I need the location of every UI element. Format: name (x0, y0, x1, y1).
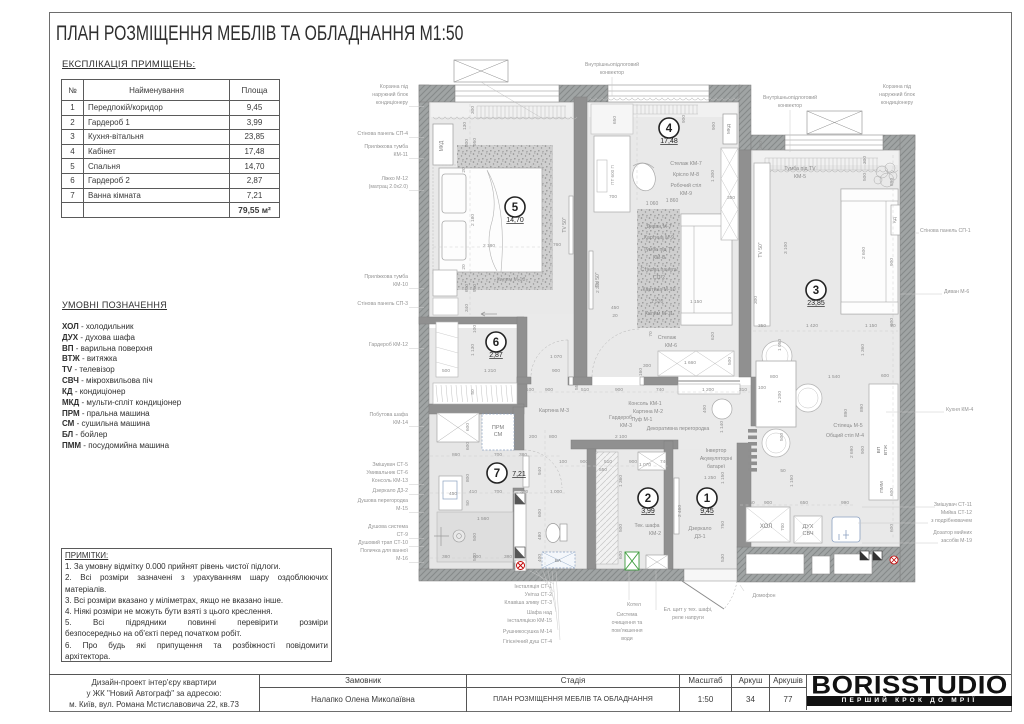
svg-text:380: 380 (504, 554, 512, 560)
svg-text:14,70: 14,70 (506, 217, 524, 224)
svg-text:1: 1 (704, 493, 711, 505)
svg-text:КМ-8: КМ-8 (653, 255, 665, 261)
svg-text:TV 50": TV 50" (758, 242, 764, 257)
svg-text:М-16: М-16 (396, 556, 408, 562)
svg-text:СМ: СМ (494, 432, 503, 438)
svg-text:КМ-2: КМ-2 (649, 531, 661, 537)
svg-text:100: 100 (559, 459, 567, 465)
svg-text:Інсталяція СТ-1: Інсталяція СТ-1 (514, 584, 552, 590)
svg-text:900: 900 (629, 459, 637, 465)
svg-text:Д3-1: Д3-1 (694, 534, 705, 540)
svg-text:650: 650 (612, 116, 618, 124)
svg-text:350: 350 (758, 323, 766, 329)
svg-text:ПТ 600 П: ПТ 600 П (610, 165, 615, 185)
svg-text:ХОЛ: ХОЛ (760, 524, 772, 530)
svg-text:2 240: 2 240 (595, 281, 601, 293)
svg-text:Душова система: Душова система (368, 524, 408, 530)
svg-text:70: 70 (648, 331, 654, 337)
svg-text:1 560: 1 560 (477, 516, 489, 522)
svg-text:380: 380 (520, 489, 528, 495)
svg-text:940: 940 (537, 467, 543, 475)
svg-text:750: 750 (720, 521, 726, 529)
svg-text:Картина М-2: Картина М-2 (633, 409, 663, 415)
svg-text:Тумба під TV: Тумба під TV (784, 166, 816, 172)
svg-text:600: 600 (464, 284, 470, 292)
svg-text:380: 380 (519, 452, 527, 458)
svg-text:Рушникосушка М-14: Рушникосушка М-14 (503, 629, 552, 635)
svg-text:КМ-3: КМ-3 (620, 423, 632, 429)
svg-text:20: 20 (612, 313, 618, 319)
svg-text:Стінова панель СП-4: Стінова панель СП-4 (357, 131, 408, 137)
svg-text:400: 400 (702, 405, 708, 413)
svg-text:500: 500 (779, 433, 785, 441)
svg-text:800: 800 (549, 434, 557, 440)
svg-text:500: 500 (472, 533, 478, 541)
svg-text:1 360: 1 360 (618, 475, 624, 487)
svg-text:інсталяцією КМ-15: інсталяцією КМ-15 (507, 618, 552, 624)
svg-text:Общий стіл М-4: Общий стіл М-4 (826, 432, 864, 439)
svg-text:води: води (621, 636, 632, 642)
svg-text:550: 550 (574, 382, 580, 390)
svg-text:Корзина під: Корзина під (380, 84, 408, 90)
svg-text:380: 380 (442, 554, 450, 560)
svg-text:3,99: 3,99 (641, 508, 655, 515)
svg-text:Змішувач СТ-11: Змішувач СТ-11 (934, 502, 972, 508)
svg-text:(матрац 2.0х2.0): (матрац 2.0х2.0) (369, 184, 409, 190)
svg-text:КМ-10: КМ-10 (393, 282, 408, 288)
svg-text:1 300: 1 300 (710, 170, 716, 182)
svg-text:Пуф М-1: Пуф М-1 (632, 417, 653, 423)
svg-text:600: 600 (618, 551, 624, 559)
svg-text:900: 900 (552, 368, 560, 374)
svg-text:Диван М-6: Диван М-6 (944, 289, 969, 295)
svg-text:Стінова панель СП-1: Стінова панель СП-1 (920, 228, 971, 234)
svg-text:Гардероб КМ-12: Гардероб КМ-12 (369, 342, 408, 348)
svg-text:1 150: 1 150 (789, 475, 795, 487)
svg-text:7: 7 (494, 468, 500, 480)
svg-text:Стінова панель СП-3: Стінова панель СП-3 (357, 301, 408, 307)
svg-text:СВЧ: СВЧ (802, 531, 813, 537)
svg-text:50: 50 (780, 468, 786, 474)
svg-text:Картина М-9: Картина М-9 (644, 235, 674, 241)
svg-text:1 860: 1 860 (666, 198, 679, 204)
svg-text:КМ-11: КМ-11 (394, 152, 409, 158)
svg-text:2 690: 2 690 (849, 446, 855, 458)
svg-text:Консоль КМ-13: Консоль КМ-13 (372, 478, 408, 484)
svg-text:конвектор: конвектор (600, 70, 624, 76)
svg-text:Дзеркало Д3-2: Дзеркало Д3-2 (373, 488, 409, 494)
svg-text:наружний блок: наружний блок (372, 91, 409, 98)
svg-text:800: 800 (770, 374, 778, 380)
svg-text:700: 700 (494, 452, 502, 458)
svg-text:кондиціонеру: кондиціонеру (376, 100, 409, 106)
svg-text:Ліжко М-12: Ліжко М-12 (382, 176, 409, 182)
svg-text:50: 50 (465, 500, 471, 506)
svg-text:засобів М-19: засобів М-19 (941, 538, 972, 544)
svg-text:1 140: 1 140 (719, 421, 725, 433)
svg-text:Диван М-7: Диван М-7 (646, 224, 671, 230)
svg-text:1 250: 1 250 (704, 475, 716, 481)
svg-text:БА: БА (555, 558, 562, 563)
svg-text:ПРМ: ПРМ (492, 425, 505, 431)
svg-text:800: 800 (473, 554, 481, 560)
svg-text:Картина М-3: Картина М-3 (539, 408, 569, 414)
svg-text:900: 900 (580, 459, 588, 465)
svg-text:Душовий трап СТ-10: Душовий трап СТ-10 (358, 539, 408, 546)
svg-text:Внутрішньопідлоговий: Внутрішньопідлоговий (585, 61, 639, 68)
svg-text:600: 600 (537, 509, 543, 517)
svg-text:200: 200 (529, 434, 537, 440)
svg-text:300: 300 (470, 106, 476, 114)
svg-text:900: 900 (681, 115, 687, 123)
svg-text:890: 890 (843, 409, 849, 417)
svg-text:450: 450 (611, 305, 619, 311)
svg-text:4: 4 (666, 123, 673, 135)
svg-text:1 070: 1 070 (550, 354, 562, 360)
svg-text:Внутрішньопідлоговий: Внутрішньопідлоговий (763, 94, 817, 101)
svg-text:620: 620 (710, 332, 716, 340)
svg-text:Дозатор мийних: Дозатор мийних (933, 529, 972, 536)
svg-text:300: 300 (643, 363, 651, 369)
svg-text:350: 350 (727, 195, 735, 201)
svg-text:Мийка СТ-12: Мийка СТ-12 (941, 509, 972, 516)
svg-text:500: 500 (727, 357, 733, 365)
svg-text:700: 700 (494, 489, 502, 495)
svg-text:960: 960 (472, 284, 478, 292)
svg-text:800: 800 (465, 474, 471, 482)
svg-text:Консоль КМ-1: Консоль КМ-1 (628, 401, 661, 407)
svg-text:2,87: 2,87 (489, 352, 503, 359)
svg-text:160: 160 (638, 368, 644, 376)
svg-text:М-15: М-15 (396, 506, 408, 512)
svg-text:Стелаж КМ-7: Стелаж КМ-7 (670, 161, 702, 167)
svg-text:1 210: 1 210 (484, 368, 496, 374)
svg-text:МКД: МКД (726, 123, 732, 134)
svg-text:ПММ: ПММ (879, 481, 885, 492)
svg-text:1 070: 1 070 (639, 462, 651, 468)
svg-text:1 520: 1 520 (651, 299, 664, 305)
svg-text:КМ-6: КМ-6 (665, 343, 677, 349)
svg-text:100: 100 (472, 325, 478, 333)
svg-text:20: 20 (461, 264, 467, 270)
svg-text:600: 600 (465, 423, 471, 431)
svg-text:Домофон: Домофон (753, 593, 776, 599)
svg-text:Тумба під TV: Тумба під TV (643, 247, 675, 253)
svg-text:Стінова панель: Стінова панель (640, 267, 677, 273)
svg-text:2 600: 2 600 (861, 247, 867, 259)
svg-text:реле напруги: реле напруги (672, 615, 704, 621)
svg-text:1 150: 1 150 (865, 323, 877, 329)
svg-text:9,45: 9,45 (700, 508, 714, 515)
svg-text:Стелаж: Стелаж (658, 335, 677, 341)
svg-text:600: 600 (881, 373, 889, 379)
svg-text:Килим М-13: Килим М-13 (497, 277, 526, 283)
svg-text:100: 100 (758, 385, 766, 391)
svg-text:Інвертор: Інвертор (706, 448, 727, 454)
svg-text:Робочий стіл: Робочий стіл (671, 182, 702, 189)
svg-text:340: 340 (464, 304, 470, 312)
svg-text:КМ-14: КМ-14 (393, 420, 408, 426)
svg-text:400: 400 (537, 554, 543, 562)
svg-text:23,85: 23,85 (807, 300, 825, 307)
svg-text:530: 530 (720, 554, 726, 562)
svg-text:410: 410 (469, 489, 477, 495)
svg-text:з подрібнювачем: з подрібнювачем (931, 518, 972, 524)
svg-text:1 150: 1 150 (690, 299, 702, 305)
svg-text:2 180: 2 180 (470, 214, 476, 226)
svg-text:3: 3 (813, 285, 819, 297)
svg-text:600: 600 (889, 524, 895, 532)
svg-text:800: 800 (464, 139, 470, 147)
svg-text:5: 5 (512, 202, 519, 214)
svg-text:700: 700 (780, 523, 785, 531)
svg-text:Корзина під: Корзина під (883, 84, 911, 90)
svg-text:550: 550 (599, 467, 607, 473)
svg-text:Крісло М-8: Крісло М-8 (673, 172, 699, 178)
svg-text:860: 860 (452, 452, 460, 458)
svg-text:наружний блок: наружний блок (879, 91, 916, 98)
svg-text:СТ-9: СТ-9 (397, 532, 408, 538)
svg-text:Стілець М-5: Стілець М-5 (833, 423, 862, 429)
svg-text:600: 600 (889, 488, 895, 496)
svg-text:Побутова шафа: Побутова шафа (370, 412, 409, 418)
svg-text:Змішувач СТ-5: Змішувач СТ-5 (372, 462, 408, 468)
svg-text:700: 700 (609, 194, 617, 200)
svg-text:890: 890 (889, 178, 895, 186)
svg-text:Кухня КМ-4: Кухня КМ-4 (946, 407, 973, 413)
svg-text:760: 760 (553, 242, 561, 248)
svg-text:50: 50 (470, 389, 476, 395)
svg-text:500: 500 (862, 173, 868, 181)
svg-text:500: 500 (442, 368, 450, 374)
svg-text:600: 600 (465, 442, 471, 450)
svg-text:Поличка для ванної: Поличка для ванної (360, 548, 408, 554)
svg-text:300: 300 (758, 141, 764, 149)
svg-text:17,48: 17,48 (660, 138, 678, 145)
svg-text:МКД: МКД (439, 140, 445, 151)
svg-text:2: 2 (645, 493, 651, 505)
svg-text:ДУХ: ДУХ (803, 524, 814, 530)
svg-text:Килим М-11: Килим М-11 (645, 311, 673, 317)
svg-text:Акумуляторні: Акумуляторні (700, 456, 732, 462)
svg-text:Ел. щит у тех. шафі,: Ел. щит у тех. шафі, (664, 607, 713, 613)
svg-text:1 200: 1 200 (777, 391, 783, 403)
svg-text:TV 50": TV 50" (562, 217, 568, 232)
svg-text:6: 6 (493, 337, 499, 349)
svg-text:Котел: Котел (627, 602, 641, 608)
svg-text:900: 900 (860, 446, 866, 454)
svg-text:480: 480 (537, 532, 543, 540)
svg-text:Картина М-10: Картина М-10 (643, 287, 676, 293)
svg-text:1 000: 1 000 (550, 489, 562, 495)
svg-text:300: 300 (753, 296, 759, 304)
svg-text:Дзеркало: Дзеркало (688, 526, 711, 532)
svg-text:2 100: 2 100 (615, 434, 627, 440)
svg-text:1 540: 1 540 (828, 374, 840, 380)
svg-text:КМ-9: КМ-9 (680, 191, 692, 197)
svg-text:конвектор: конвектор (778, 103, 802, 109)
svg-text:1 130: 1 130 (470, 344, 476, 356)
svg-text:1 420: 1 420 (806, 323, 818, 329)
svg-text:1 660: 1 660 (684, 360, 696, 366)
svg-text:Унітаз СТ-2: Унітаз СТ-2 (525, 592, 553, 598)
svg-text:КД: КД (892, 216, 897, 223)
svg-text:Гігієнічний душ СТ-4: Гігієнічний душ СТ-4 (503, 638, 552, 645)
svg-text:ВП: ВП (876, 446, 882, 453)
svg-text:500: 500 (618, 524, 624, 532)
svg-text:20: 20 (461, 167, 467, 173)
svg-text:ВТЖ: ВТЖ (883, 444, 889, 455)
svg-text:помʼякшення: помʼякшення (611, 628, 642, 634)
svg-text:Клавіша зливу СТ-3: Клавіша зливу СТ-3 (504, 600, 552, 606)
svg-text:950: 950 (472, 138, 478, 146)
svg-text:Декоративна перегородка: Декоративна перегородка (647, 426, 710, 432)
svg-text:510: 510 (604, 459, 612, 465)
svg-text:2 460: 2 460 (677, 505, 683, 517)
svg-text:СП-2: СП-2 (653, 275, 665, 281)
svg-text:70: 70 (577, 368, 583, 374)
svg-text:2 180: 2 180 (483, 243, 495, 249)
svg-text:1 360: 1 360 (860, 344, 866, 356)
svg-text:740: 740 (660, 459, 668, 465)
svg-text:Тек. шафа: Тек. шафа (634, 523, 659, 529)
svg-text:кондиціонеру: кондиціонеру (881, 100, 914, 106)
svg-text:7,21: 7,21 (512, 471, 526, 478)
svg-text:Шафа над: Шафа над (527, 610, 552, 616)
svg-text:1 050: 1 050 (777, 339, 783, 351)
svg-text:КМ-5: КМ-5 (794, 174, 806, 180)
svg-text:Приліжкова тумба: Приліжкова тумба (364, 274, 408, 280)
svg-text:900: 900 (889, 258, 895, 266)
svg-text:Приліжкова тумба: Приліжкова тумба (364, 144, 408, 150)
svg-text:Душова перегородка: Душова перегородка (358, 498, 408, 504)
svg-text:очищення та: очищення та (612, 620, 643, 626)
svg-text:1 150: 1 150 (720, 472, 726, 484)
svg-text:батареї: батареї (707, 464, 726, 470)
svg-text:900: 900 (711, 122, 717, 130)
svg-text:Гардероб: Гардероб (609, 415, 632, 421)
svg-text:1 060: 1 060 (646, 201, 659, 207)
svg-text:Система: Система (617, 612, 638, 618)
svg-text:890: 890 (859, 404, 865, 412)
svg-text:3 100: 3 100 (783, 242, 789, 254)
svg-text:Умивальник СТ-6: Умивальник СТ-6 (366, 470, 408, 476)
svg-text:450: 450 (449, 491, 457, 497)
svg-text:300: 300 (862, 156, 868, 164)
svg-text:130: 130 (462, 122, 468, 130)
